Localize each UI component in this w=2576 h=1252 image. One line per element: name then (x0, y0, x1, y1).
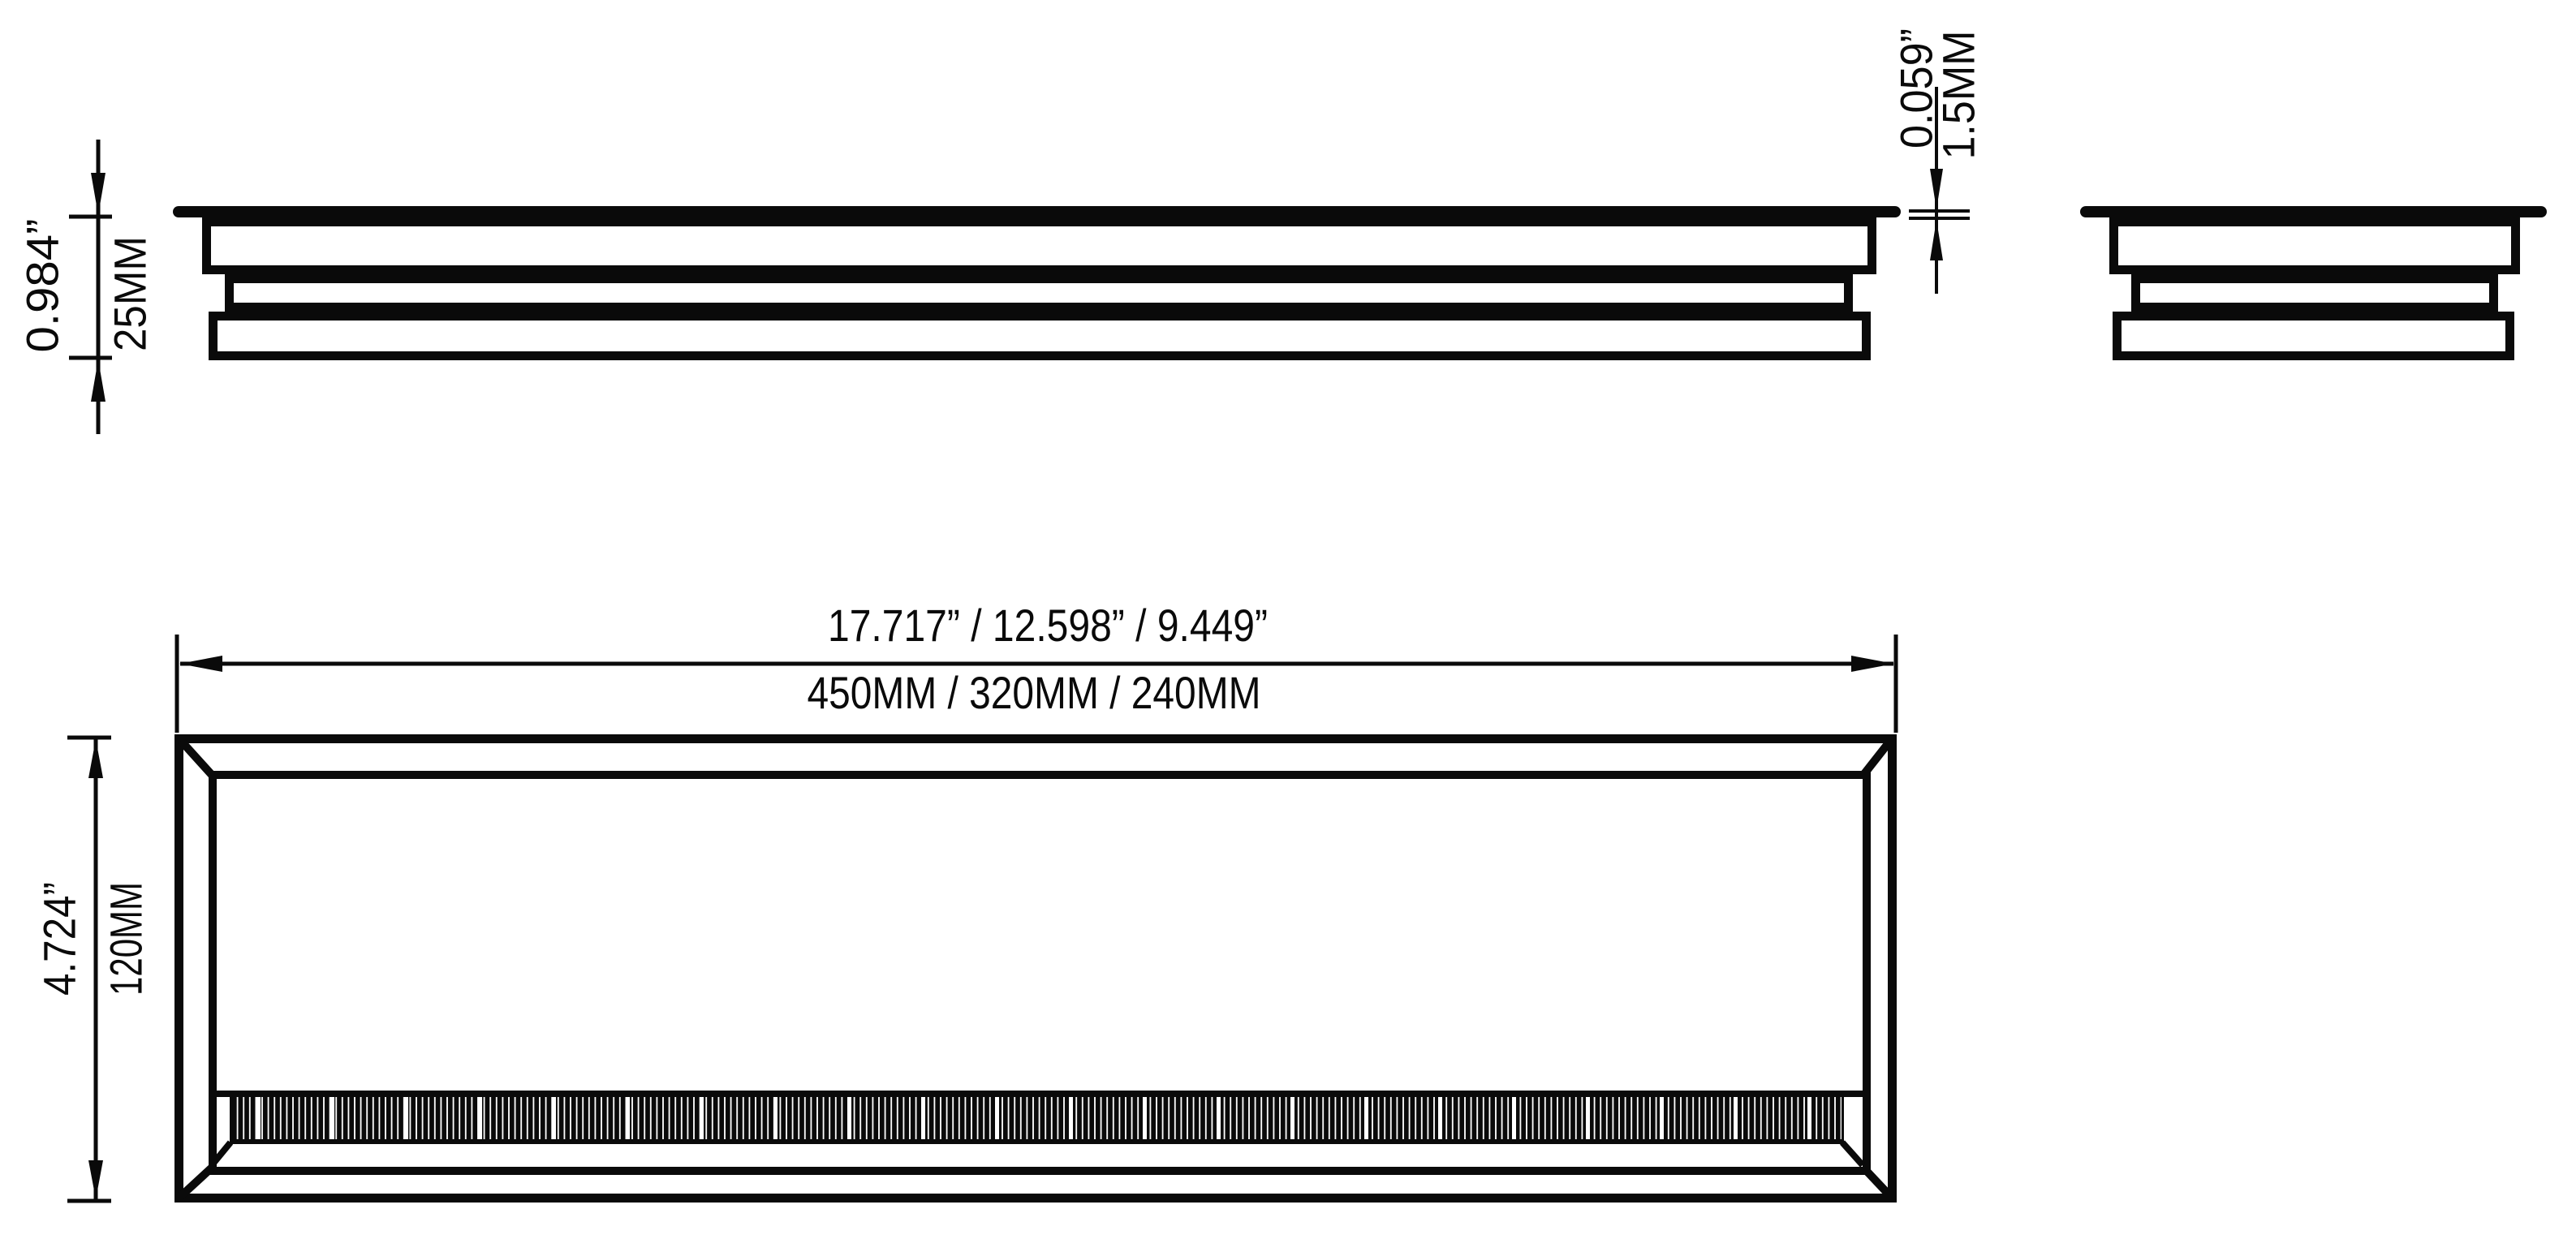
end-elevation-view (2080, 206, 2547, 356)
end-view-top-lid-plate (2080, 206, 2547, 217)
dimension-lid-thickness: 0.059” 1.5MM (1891, 28, 1984, 294)
dim-height-arrow-top (91, 173, 106, 215)
top-plan-view (179, 739, 1893, 1198)
end-view-base-flange (2117, 316, 2510, 356)
dim-lid-arrow-down (1930, 169, 1943, 209)
dim-length-label-inches: 17.717” / 12.598” / 9.449” (828, 600, 1268, 651)
dim-width-arrow-bottom (88, 1160, 103, 1199)
dim-width-label-inches: 4.724” (34, 882, 85, 996)
dim-height-label-inches: 0.984” (17, 219, 68, 353)
dim-length-arrow-right (1851, 656, 1894, 672)
technical-drawing-canvas: 0.984” 25MM 0.059” 1.5MM 17.717” / 12.59… (0, 0, 2576, 1252)
dim-height-arrow-bottom (91, 359, 106, 402)
dimension-profile-height: 0.984” 25MM (17, 140, 156, 434)
side-view-top-lid-plate (173, 206, 1901, 217)
dim-lid-label-mm: 1.5MM (1933, 31, 1984, 160)
dim-width-arrow-top (88, 739, 103, 778)
end-view-upper-body (2114, 222, 2516, 270)
dim-height-label-mm: 25MM (105, 236, 156, 351)
side-elevation-view (173, 206, 1901, 356)
side-view-upper-body (207, 222, 1872, 270)
brush-bristles-group-gaps (232, 1097, 1842, 1139)
dim-lid-arrow-up (1930, 220, 1943, 260)
end-view-recessed-step (2136, 279, 2494, 308)
dim-length-label-mm: 450MM / 320MM / 240MM (808, 667, 1261, 718)
dim-length-arrow-left (179, 656, 222, 672)
dimension-length-options: 17.717” / 12.598” / 9.449” 450MM / 320MM… (177, 600, 1896, 733)
side-view-recessed-step (230, 279, 1849, 308)
dim-width-label-mm: 120MM (101, 882, 152, 996)
side-view-base-flange (213, 316, 1867, 356)
drawing-svg: 0.984” 25MM 0.059” 1.5MM 17.717” / 12.59… (0, 0, 2576, 1252)
dimension-width: 4.724” 120MM (34, 738, 152, 1201)
